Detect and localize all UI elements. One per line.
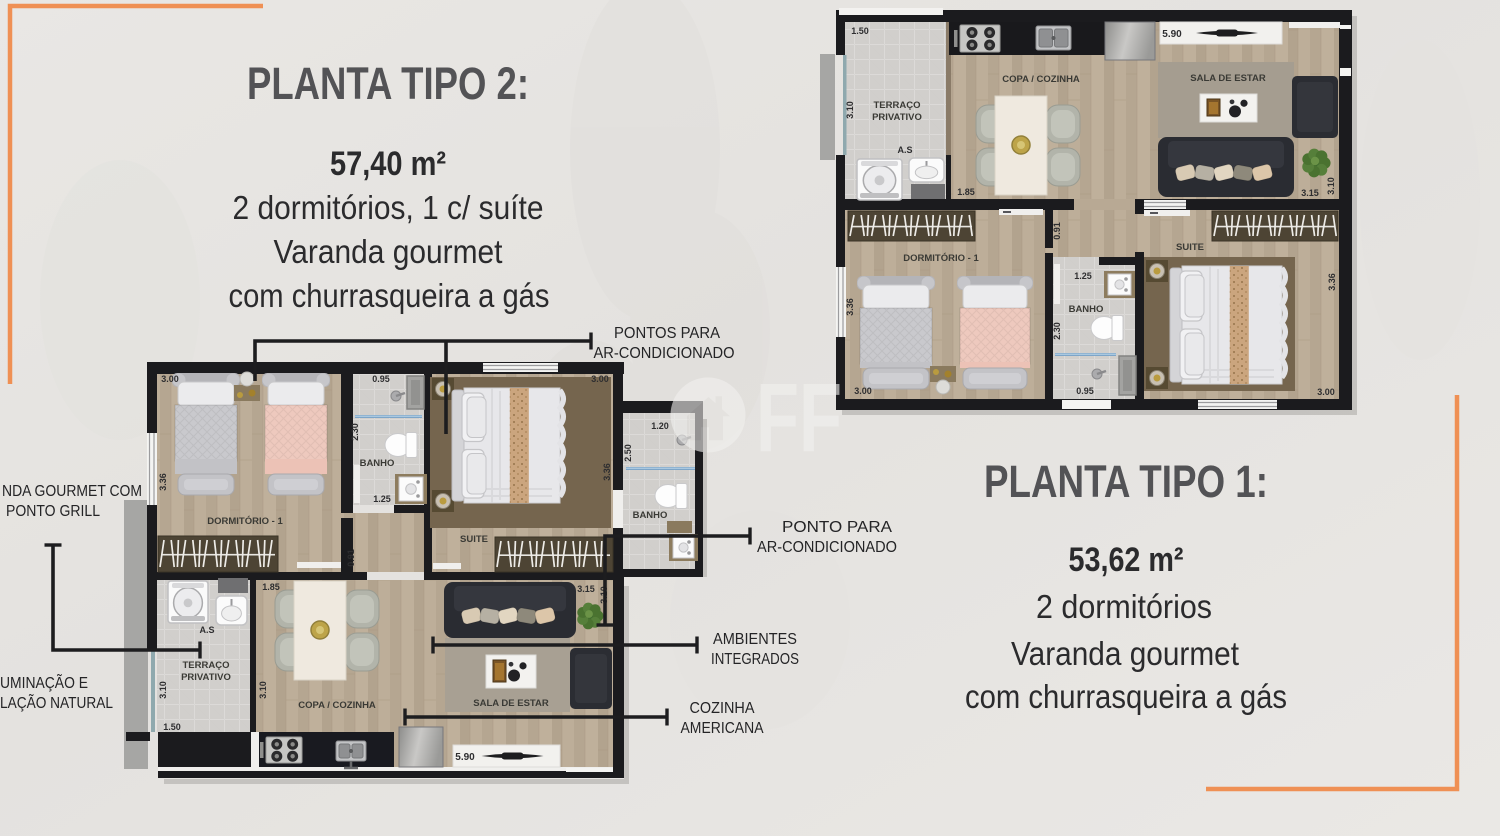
svg-text:BANHO: BANHO (360, 458, 395, 469)
svg-text:PRIVATIVO: PRIVATIVO (872, 112, 922, 123)
svg-text:3.15: 3.15 (1301, 188, 1319, 198)
svg-text:UMINAÇÃO E: UMINAÇÃO E (0, 672, 88, 692)
svg-text:3.36: 3.36 (1327, 273, 1337, 291)
svg-text:0.95: 0.95 (1076, 386, 1094, 396)
svg-text:3.00: 3.00 (1317, 387, 1335, 397)
svg-text:PLANTA TIPO 2:: PLANTA TIPO 2: (247, 58, 529, 109)
svg-text:PLANTA TIPO 1:: PLANTA TIPO 1: (984, 456, 1268, 507)
svg-text:1.50: 1.50 (851, 26, 869, 36)
svg-text:SUITE: SUITE (1176, 242, 1204, 253)
svg-text:Varanda gourmet: Varanda gourmet (1011, 635, 1239, 672)
svg-text:3.36: 3.36 (845, 298, 855, 316)
svg-text:3.10: 3.10 (845, 101, 855, 119)
svg-text:53,62 m²: 53,62 m² (1069, 541, 1184, 579)
svg-text:3.00: 3.00 (161, 374, 179, 384)
svg-text:AR-CONDICIONADO: AR-CONDICIONADO (594, 345, 735, 362)
svg-text:5.90: 5.90 (455, 752, 475, 763)
svg-text:2 dormitórios: 2 dormitórios (1036, 588, 1212, 625)
svg-text:PONTOS PARA: PONTOS PARA (614, 325, 720, 342)
svg-text:com churrasqueira a gás: com churrasqueira a gás (229, 277, 550, 314)
svg-text:COPA / COZINHA: COPA / COZINHA (298, 700, 376, 711)
svg-text:5.90: 5.90 (1162, 29, 1182, 40)
svg-text:1.25: 1.25 (373, 494, 391, 504)
svg-text:2.50: 2.50 (623, 444, 633, 462)
svg-text:COZINHA: COZINHA (690, 700, 755, 717)
svg-text:3.10: 3.10 (1326, 177, 1336, 195)
svg-text:3.00: 3.00 (591, 374, 609, 384)
svg-text:1.85: 1.85 (957, 187, 975, 197)
svg-text:SALA DE ESTAR: SALA DE ESTAR (1190, 73, 1266, 84)
svg-text:2.30: 2.30 (350, 423, 360, 441)
svg-text:0.91: 0.91 (1052, 222, 1062, 240)
svg-text:PONTO GRILL: PONTO GRILL (6, 503, 100, 520)
svg-text:NDA GOURMET COM: NDA GOURMET COM (2, 483, 142, 500)
svg-text:57,40 m²: 57,40 m² (330, 145, 446, 183)
svg-text:1.20: 1.20 (651, 421, 669, 431)
svg-text:2.30: 2.30 (1052, 322, 1062, 340)
svg-text:1.85: 1.85 (262, 582, 280, 592)
svg-text:3.10: 3.10 (158, 681, 168, 699)
svg-text:AR-CONDICIONADO: AR-CONDICIONADO (757, 539, 897, 556)
svg-text:A.S: A.S (199, 625, 214, 635)
svg-text:Varanda gourmet: Varanda gourmet (274, 233, 503, 270)
svg-text:AMERICANA: AMERICANA (681, 720, 764, 737)
svg-text:2 dormitórios, 1 c/ suíte: 2 dormitórios, 1 c/ suíte (233, 189, 544, 226)
svg-text:TERRAÇO: TERRAÇO (874, 100, 921, 111)
svg-text:LAÇÃO NATURAL: LAÇÃO NATURAL (0, 692, 113, 712)
svg-text:BANHO: BANHO (1069, 304, 1104, 315)
svg-text:3.10: 3.10 (258, 681, 268, 699)
svg-text:TERRAÇO: TERRAÇO (183, 660, 230, 671)
svg-text:com churrasqueira a gás: com churrasqueira a gás (965, 678, 1287, 715)
svg-text:DORMITÓRIO - 1: DORMITÓRIO - 1 (903, 252, 979, 264)
svg-text:BANHO: BANHO (633, 510, 668, 521)
svg-text:1.25: 1.25 (1074, 271, 1092, 281)
svg-text:COPA / COZINHA: COPA / COZINHA (1002, 74, 1080, 85)
svg-text:1.50: 1.50 (163, 722, 181, 732)
svg-text:SUITE: SUITE (460, 534, 488, 545)
svg-text:AMBIENTES: AMBIENTES (713, 631, 797, 648)
svg-text:3.00: 3.00 (854, 386, 872, 396)
svg-text:SALA DE ESTAR: SALA DE ESTAR (473, 698, 549, 709)
svg-text:A.S: A.S (897, 145, 912, 155)
svg-text:0.95: 0.95 (372, 374, 390, 384)
svg-text:0.91: 0.91 (346, 549, 356, 567)
svg-text:DORMITÓRIO - 1: DORMITÓRIO - 1 (207, 515, 283, 527)
svg-text:3.36: 3.36 (602, 463, 612, 481)
svg-text:3.15: 3.15 (577, 584, 595, 594)
svg-text:INTEGRADOS: INTEGRADOS (711, 651, 799, 668)
svg-text:PONTO PARA: PONTO PARA (782, 519, 892, 536)
svg-text:FF: FF (756, 363, 842, 472)
svg-text:PRIVATIVO: PRIVATIVO (181, 672, 231, 683)
svg-text:3.36: 3.36 (158, 473, 168, 491)
